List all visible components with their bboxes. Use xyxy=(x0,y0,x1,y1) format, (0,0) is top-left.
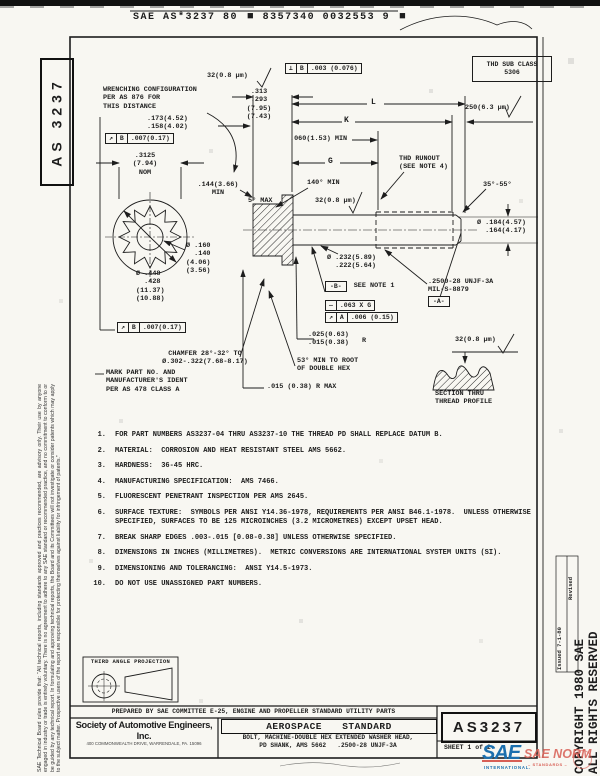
tolerance-value: .006 (0.15) xyxy=(348,313,397,322)
scan-header-text: SAE AS*3237 80 xyxy=(133,13,238,23)
thd-sub-class: THD SUB CLASS 5306 xyxy=(487,61,538,78)
dim-r-max: .015 (0.38) R MAX xyxy=(267,383,336,391)
tolerance-value: .007(0.17) xyxy=(140,323,185,332)
sae-logo-stripe xyxy=(482,760,522,762)
runout-icon: ↗ xyxy=(326,313,337,322)
datum-a-flag: -A- xyxy=(428,296,450,307)
fcf-runout-b-bottom: ↗ B .007(0.17) xyxy=(117,322,186,333)
sae-standards-text: – STANDARDS – xyxy=(528,763,567,767)
fcf-straightness: — .063 X G xyxy=(325,300,375,311)
org-name: Society of Automotive Engineers, Inc. xyxy=(72,720,216,741)
doc-number-box: AS3237 xyxy=(441,712,537,743)
sae-international-text: INTERNATIONAL. xyxy=(484,766,531,770)
datum-ref: B xyxy=(129,323,140,332)
dim-bore: Ø .160 .140 (4.06) (3.56) xyxy=(186,242,210,276)
dim-fillet: .025(0.63) .015(0.38) xyxy=(308,331,349,348)
stamp-circle-icon xyxy=(573,750,592,769)
perpendicularity-icon: ⊥ xyxy=(286,64,297,73)
dim-L: L xyxy=(371,98,376,108)
note-item: 1.FOR PART NUMBERS AS3237-04 THRU AS3237… xyxy=(84,431,540,440)
disclaimer-text: SAE Technical Board rules provide that: … xyxy=(37,384,63,772)
note-item: 2.MATERIAL: CORROSION AND HEAT RESISTANT… xyxy=(84,447,540,456)
doc-number-vertical: AS 3237 xyxy=(50,77,64,166)
note-item: 7.BREAK SHARP EDGES .003-.015 [0.08-0.38… xyxy=(84,534,540,543)
angle-csk: 140° MIN xyxy=(307,179,340,187)
fcf-runout-a: ↗ A .006 (0.15) xyxy=(325,312,398,323)
tolerance-value: .003 (0.076) xyxy=(308,64,361,73)
tolerance-value: .007(0.17) xyxy=(128,134,173,143)
note-item: 8.DIMENSIONS IN INCHES (MILLIMETRES). ME… xyxy=(84,549,540,558)
datum-ref: B xyxy=(297,64,308,73)
thd-sub-class-box: THD SUB CLASS 5306 xyxy=(472,56,552,82)
surface-finish-32-thread: 32(0.8 μm) xyxy=(455,336,496,344)
surface-finish-32: 32(0.8 μm) xyxy=(207,72,248,80)
sae-norm-watermark: SAE SAE NORM INTERNATIONAL. – STANDARDS … xyxy=(480,742,600,776)
doc-number-side-box: AS 3237 xyxy=(40,58,74,186)
dim-runout-min: .060(1.53) MIN xyxy=(290,135,347,143)
chamfer-note: CHAMFER 28°-32° TO Ø.302-.322(7.68-8.17) xyxy=(143,350,267,367)
org-cell: Society of Automotive Engineers, Inc. 40… xyxy=(72,720,216,748)
title-line2: PD SHANK, AMS 5662 .2500-28 UNJF-3A xyxy=(221,742,435,750)
angle-point: 35°-55° xyxy=(483,181,512,189)
note-item: 6.SURFACE TEXTURE: SYMBOLS PER ANSI Y14.… xyxy=(84,509,540,527)
datum-ref: B xyxy=(117,134,128,143)
doc-number: AS3237 xyxy=(453,720,525,735)
title-line1: BOLT, MACHINE-DOUBLE HEX EXTENDED WASHER… xyxy=(221,734,435,742)
runout-icon: ↗ xyxy=(106,134,117,143)
note-item: 5.FLUORESCENT PENETRANT INSPECTION PER A… xyxy=(84,493,540,502)
datum-b-group: -B- SEE NOTE 1 — .063 X G ↗ A .006 (0.15… xyxy=(325,281,398,323)
note-item: 4.MANUFACTURING SPECIFICATION: AMS 7466. xyxy=(84,478,540,487)
note-item: 10.DO NOT USE UNASSIGNED PART NUMBERS. xyxy=(84,580,540,589)
dim-head-height: .313 .293 (7.95) (7.43) xyxy=(245,88,273,122)
dim-point-dia: Ø .184(4.57) .164(4.17) xyxy=(477,219,526,236)
angle-draft: 5° MAX xyxy=(248,197,272,205)
fcf-perpendicularity: ⊥ B .003 (0.076) xyxy=(285,63,362,74)
copyright-line1: COPYRIGHT 1980 SAE xyxy=(574,540,588,774)
front-view xyxy=(96,113,250,330)
scanned-standard-sheet: SAE AS*3237 80 ■ 8357340 0032553 9 ■ AS … xyxy=(0,0,600,776)
section-note: SECTION THRU THREAD PROFILE xyxy=(435,390,492,407)
datum-b-flag: -B- xyxy=(325,281,347,292)
note-item: 9.DIMENSIONING AND TOLERANCING: ANSI Y14… xyxy=(84,565,540,574)
revised-label: Revised xyxy=(568,558,574,600)
general-notes: 1.FOR PART NUMBERS AS3237-04 THRU AS3237… xyxy=(84,431,540,596)
doc-type-box: AEROSPACE STANDARD xyxy=(221,719,437,734)
datum-ref: A xyxy=(337,313,348,322)
see-note-1: SEE NOTE 1 xyxy=(354,283,395,290)
thd-runout-note: THD RUNOUT (SEE NOTE 4) xyxy=(399,155,448,172)
dim-G: G xyxy=(328,157,333,167)
thread-spec: .2500-28 UNJF-3A MIL-S-8879 xyxy=(428,278,493,295)
title-cell: BOLT, MACHINE-DOUBLE HEX EXTENDED WASHER… xyxy=(221,734,435,750)
fcf-runout-b-top: ↗ B .007(0.17) xyxy=(105,133,174,144)
angle-hex-root: 53° MIN TO ROOT OF DOUBLE HEX xyxy=(297,357,358,374)
runout-icon: ↗ xyxy=(118,323,129,332)
mark-note: MARK PART NO. AND MANUFACTURER'S IDENT P… xyxy=(106,369,188,394)
org-address: 400 COMMONWEALTH DRIVE, WARRENDALE, PA. … xyxy=(72,741,216,748)
scan-header-code: 8357340 0032553 9 xyxy=(263,13,391,23)
straightness-icon: — xyxy=(326,301,337,310)
note-item: 3.HARDNESS: 36-45 HRC. xyxy=(84,462,540,471)
tolerance-value: .063 X G xyxy=(337,301,374,310)
dim-shank-dia: Ø .232(5.89) .222(5.64) xyxy=(327,254,376,271)
projection-label: THIRD ANGLE PROJECTION xyxy=(85,659,176,666)
scan-speckles xyxy=(0,0,2,2)
doc-type: AEROSPACE STANDARD xyxy=(266,722,392,732)
scan-header: SAE AS*3237 80 ■ 8357340 0032553 9 ■ xyxy=(133,12,406,23)
surface-finish-32-shank: 32(0.8 μm) xyxy=(315,197,356,205)
filled-square-icon: ■ xyxy=(247,12,254,23)
filled-square-icon: ■ xyxy=(399,12,406,23)
copyright-line2: ALL RIGHTS RESERVED xyxy=(588,540,600,774)
dim-across-flats: .3125 (7.94) NOM xyxy=(123,152,167,177)
dim-head-dia: Ø .448 .428 (11.37) (10.88) xyxy=(136,270,165,304)
copyright-text: COPYRIGHT 1980 SAE ALL RIGHTS RESERVED xyxy=(574,540,600,774)
dim-wrench-depth: .173(4.52) .158(4.02) xyxy=(147,115,188,132)
dim-wrench-min: .144(3.66) MIN xyxy=(192,181,244,198)
surface-finish-250: 250(6.3 μm) xyxy=(465,104,510,112)
issued-label: Issued 7-1-80 xyxy=(557,558,563,670)
wrenching-note: WRENCHING CONFIGURATION PER AS 876 FOR T… xyxy=(103,86,197,111)
fillet-radius: R xyxy=(362,337,366,345)
dim-K: K xyxy=(344,116,349,126)
prepared-by: PREPARED BY SAE COMMITTEE E-25, ENGINE A… xyxy=(70,708,437,716)
